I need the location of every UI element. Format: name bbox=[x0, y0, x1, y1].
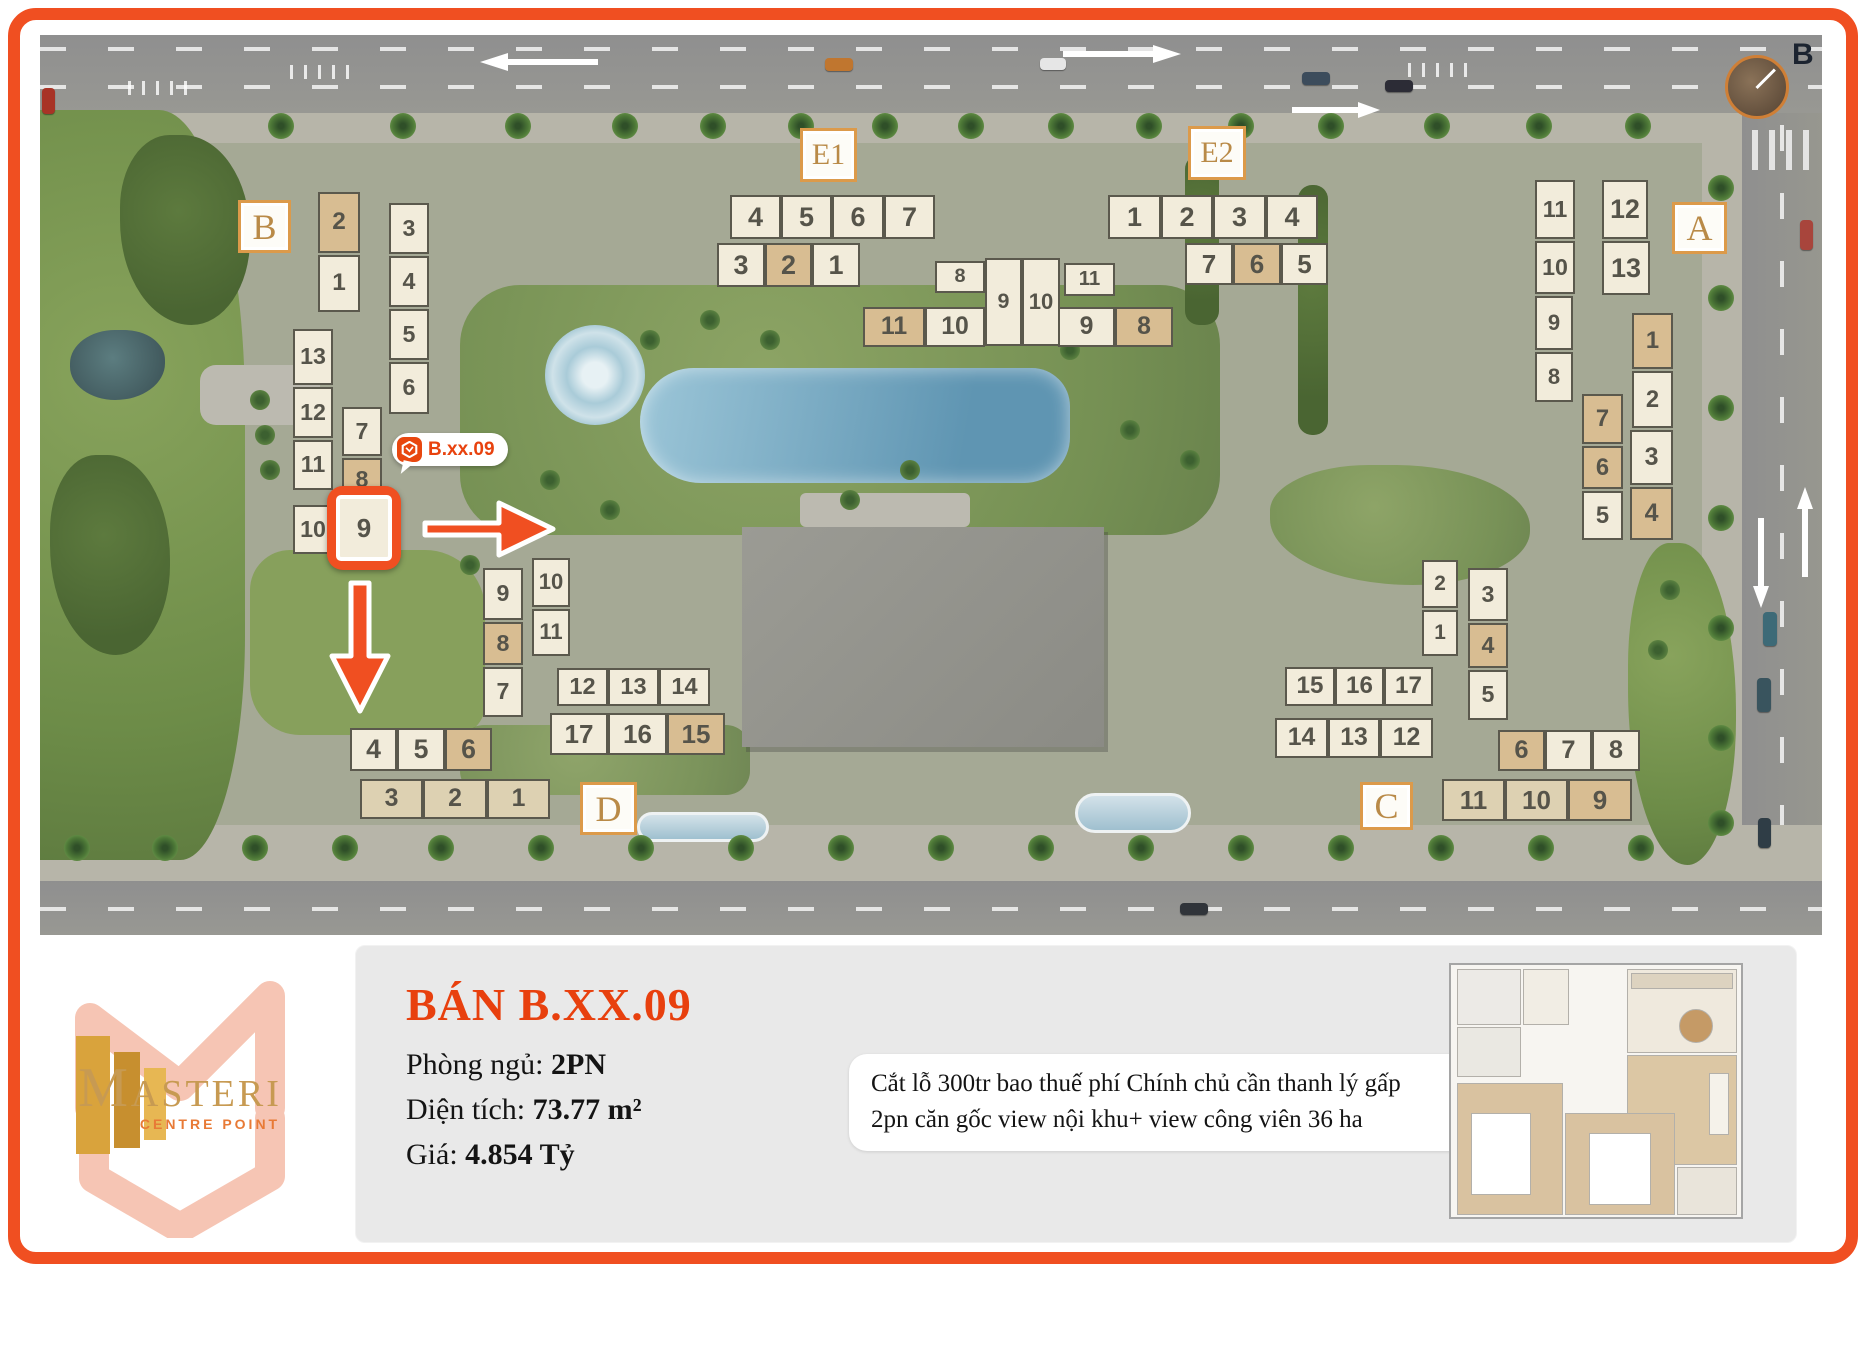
listing-title: BÁN B.XX.09 bbox=[406, 978, 692, 1031]
car-icon bbox=[1180, 903, 1208, 915]
tree-icon bbox=[840, 490, 860, 510]
palm-tree-icon bbox=[242, 835, 268, 861]
car-icon bbox=[42, 88, 55, 114]
floor-plan-sofa bbox=[1709, 1073, 1729, 1135]
car-icon bbox=[1763, 612, 1777, 646]
unit-box-c-1: 1 bbox=[1422, 610, 1458, 656]
pointer-arrow-right-icon bbox=[422, 497, 558, 561]
floor-plan-image bbox=[1449, 963, 1743, 1219]
car-icon bbox=[1385, 80, 1413, 92]
parking-marks bbox=[290, 65, 360, 79]
sidewalk-top bbox=[40, 113, 1822, 143]
unit-box-e-10: 10 bbox=[1022, 258, 1060, 346]
compass-icon bbox=[1725, 55, 1789, 119]
logo-brand-text: MASTERI bbox=[52, 1056, 308, 1120]
logo-tagline-text: CENTRE POINT bbox=[82, 1116, 338, 1132]
unit-box-c-11: 11 bbox=[1442, 779, 1505, 821]
unit-box-c-4: 4 bbox=[1468, 623, 1508, 668]
palm-tree-icon bbox=[628, 835, 654, 861]
tree-icon bbox=[255, 425, 275, 445]
palm-tree-icon bbox=[1708, 810, 1734, 836]
tree-icon bbox=[250, 390, 270, 410]
palm-tree-icon bbox=[728, 835, 754, 861]
note-line-2: 2pn căn gốc view nội khu+ view công viên… bbox=[871, 1102, 1459, 1138]
unit-box-c-2: 2 bbox=[1422, 560, 1458, 608]
unit-box-a-7: 7 bbox=[1582, 394, 1623, 444]
floor-plan-room bbox=[1457, 969, 1521, 1025]
unit-box-a-11: 11 bbox=[1535, 180, 1575, 239]
area-value: 73.77 m² bbox=[533, 1093, 642, 1126]
unit-box-b-6: 6 bbox=[389, 362, 429, 414]
unit-box-a-8: 8 bbox=[1535, 352, 1573, 402]
unit-box-d-12: 12 bbox=[557, 668, 608, 706]
palm-tree-icon bbox=[528, 835, 554, 861]
tooltip-label: B.xx.09 bbox=[428, 439, 495, 461]
unit-box-b-7: 7 bbox=[342, 407, 382, 456]
unit-box-d-9: 9 bbox=[483, 568, 523, 620]
block-label-b: B bbox=[238, 200, 291, 253]
unit-box-c-6: 6 bbox=[1498, 730, 1545, 771]
unit-box-c-7: 7 bbox=[1545, 730, 1592, 771]
unit-box-e-9: 9 bbox=[985, 258, 1022, 346]
palm-tree-icon bbox=[1528, 835, 1554, 861]
floor-plan-bed bbox=[1471, 1113, 1531, 1195]
tree-icon bbox=[900, 460, 920, 480]
price-value: 4.854 Tỷ bbox=[465, 1138, 574, 1171]
unit-box-c-8: 8 bbox=[1592, 730, 1640, 771]
unit-box-e2-7: 7 bbox=[1185, 243, 1233, 285]
unit-box-d-16: 16 bbox=[608, 713, 667, 755]
tree-icon bbox=[260, 460, 280, 480]
tree-icon bbox=[1120, 420, 1140, 440]
unit-box-e2-6: 6 bbox=[1233, 243, 1281, 285]
palm-tree-icon bbox=[1526, 113, 1552, 139]
tree-icon bbox=[1648, 640, 1668, 660]
palm-tree-icon bbox=[390, 113, 416, 139]
garden-southeast bbox=[1270, 465, 1530, 585]
unit-box-a-4: 4 bbox=[1630, 487, 1673, 540]
unit-box-b-12: 12 bbox=[293, 387, 333, 438]
lane-dashes bbox=[40, 47, 1822, 51]
compass-north-label: B bbox=[1792, 38, 1814, 72]
unit-box-d-5: 5 bbox=[397, 728, 445, 771]
area-label: Diện tích: bbox=[406, 1093, 533, 1126]
unit-box-d-7: 7 bbox=[483, 667, 523, 717]
lazy-river bbox=[1075, 793, 1191, 833]
unit-box-b-2: 2 bbox=[318, 192, 360, 253]
floor-plan-balcony bbox=[1677, 1167, 1737, 1215]
unit-box-e1-2: 2 bbox=[765, 243, 812, 287]
palm-tree-icon bbox=[958, 113, 984, 139]
bedrooms-row: Phòng ngủ: 2PN bbox=[406, 1048, 606, 1082]
tree-icon bbox=[1660, 580, 1680, 600]
unit-box-a-10: 10 bbox=[1535, 241, 1575, 294]
unit-box-c-5: 5 bbox=[1468, 670, 1508, 720]
parking-marks bbox=[1408, 63, 1472, 77]
unit-box-e-10b: 10 bbox=[925, 307, 985, 347]
block-label-e1: E1 bbox=[800, 128, 857, 182]
palm-tree-icon bbox=[1228, 835, 1254, 861]
unit-box-e-9b: 9 bbox=[1058, 307, 1115, 347]
road-arrow-right-icon bbox=[1292, 101, 1382, 119]
unit-box-c-9: 9 bbox=[1568, 779, 1632, 821]
palm-tree-icon bbox=[152, 835, 178, 861]
water-feature-spiral bbox=[545, 325, 645, 425]
unit-box-d-3: 3 bbox=[360, 779, 423, 819]
tree-icon bbox=[760, 330, 780, 350]
unit-box-d-4: 4 bbox=[350, 728, 397, 771]
car-icon bbox=[1302, 72, 1330, 85]
palm-tree-icon bbox=[332, 835, 358, 861]
clubhouse-footprint bbox=[742, 527, 1104, 747]
palm-tree-icon bbox=[1424, 113, 1450, 139]
hedge bbox=[1185, 155, 1219, 325]
palm-tree-icon bbox=[64, 835, 90, 861]
unit-box-e1-3: 3 bbox=[717, 243, 765, 287]
road-arrow-right-icon bbox=[1063, 43, 1183, 65]
floor-plan-bed bbox=[1589, 1133, 1651, 1205]
block-label-a: A bbox=[1672, 202, 1727, 254]
palm-tree-icon bbox=[1708, 725, 1734, 751]
block-label-e2: E2 bbox=[1188, 126, 1246, 180]
central-pool bbox=[640, 368, 1070, 483]
unit-box-c-10: 10 bbox=[1505, 779, 1568, 821]
palm-tree-icon bbox=[1708, 285, 1734, 311]
unit-box-d-1: 1 bbox=[487, 779, 550, 819]
unit-box-d-15: 15 bbox=[667, 713, 725, 755]
floor-plan-counter bbox=[1631, 973, 1733, 989]
unit-box-e1-1: 1 bbox=[812, 243, 860, 287]
price-row: Giá: 4.854 Tỷ bbox=[406, 1138, 575, 1172]
crosswalk bbox=[1752, 130, 1816, 170]
unit-box-e2-1: 1 bbox=[1108, 195, 1161, 239]
palm-tree-icon bbox=[1428, 835, 1454, 861]
tree-icon bbox=[640, 330, 660, 350]
unit-box-d-14: 14 bbox=[659, 668, 710, 706]
unit-box-c-16: 16 bbox=[1335, 667, 1384, 706]
unit-box-e-11b: 11 bbox=[863, 307, 925, 347]
unit-box-b-3: 3 bbox=[389, 203, 429, 254]
palm-tree-icon bbox=[1708, 395, 1734, 421]
palm-tree-icon bbox=[1028, 835, 1054, 861]
unit-box-b-4: 4 bbox=[389, 256, 429, 307]
palm-tree-icon bbox=[1708, 615, 1734, 641]
masteri-logo: MASTERI CENTRE POINT bbox=[52, 948, 308, 1238]
unit-box-c-15: 15 bbox=[1285, 667, 1335, 706]
palm-tree-icon bbox=[1136, 113, 1162, 139]
road-arrow-down-icon bbox=[1752, 518, 1770, 610]
unit-box-e2-3: 3 bbox=[1213, 195, 1266, 239]
unit-box-b-1: 1 bbox=[318, 255, 360, 312]
palm-tree-icon bbox=[612, 113, 638, 139]
unit-box-a-6: 6 bbox=[1582, 446, 1623, 489]
unit-box-e2-2: 2 bbox=[1161, 195, 1213, 239]
unit-box-c-3: 3 bbox=[1468, 568, 1508, 621]
palm-tree-icon bbox=[700, 113, 726, 139]
listing-note: Cắt lỗ 300tr bao thuế phí Chính chủ cần … bbox=[849, 1054, 1481, 1151]
tooltip-tail bbox=[401, 460, 422, 478]
palm-tree-icon bbox=[1328, 835, 1354, 861]
unit-box-c-13: 13 bbox=[1328, 718, 1380, 758]
unit-box-a-2: 2 bbox=[1632, 371, 1673, 428]
palm-tree-icon bbox=[1628, 835, 1654, 861]
price-label: Giá: bbox=[406, 1138, 465, 1171]
tree-icon bbox=[700, 310, 720, 330]
tree-icon bbox=[600, 500, 620, 520]
unit-box-c-14: 14 bbox=[1275, 718, 1328, 758]
unit-box-e-8: 8 bbox=[935, 261, 985, 293]
unit-box-b-13: 13 bbox=[293, 329, 333, 385]
tree-icon bbox=[1180, 450, 1200, 470]
unit-box-a-3: 3 bbox=[1630, 430, 1673, 485]
tree-icon bbox=[540, 470, 560, 490]
unit-box-d-8: 8 bbox=[483, 622, 523, 665]
unit-box-e1-4: 4 bbox=[730, 195, 781, 239]
palm-tree-icon bbox=[1625, 113, 1651, 139]
road-arrow-up-icon bbox=[1796, 485, 1814, 577]
lane-dashes bbox=[40, 85, 1822, 89]
car-icon bbox=[1757, 678, 1771, 712]
palm-tree-icon bbox=[872, 113, 898, 139]
palm-tree-icon bbox=[828, 835, 854, 861]
unit-box-a-1: 1 bbox=[1632, 313, 1673, 369]
unit-box-e2-4: 4 bbox=[1266, 195, 1318, 239]
unit-box-a-13: 13 bbox=[1602, 241, 1650, 295]
area-row: Diện tích: 73.77 m² bbox=[406, 1093, 642, 1127]
lane-dashes bbox=[1780, 125, 1784, 880]
unit-box-d-6: 6 bbox=[445, 728, 492, 771]
unit-box-d-13: 13 bbox=[608, 668, 659, 706]
pavilion bbox=[800, 493, 970, 527]
unit-box-c-12: 12 bbox=[1380, 718, 1433, 758]
unit-box-a-5: 5 bbox=[1582, 491, 1623, 540]
floor-plan-table bbox=[1679, 1009, 1713, 1043]
floor-plan-room bbox=[1523, 969, 1569, 1025]
palm-tree-icon bbox=[268, 113, 294, 139]
unit-box-a-12: 12 bbox=[1602, 180, 1648, 239]
compass-needle bbox=[1755, 69, 1776, 90]
unit-box-b-9[interactable]: 9 bbox=[336, 495, 392, 561]
unit-box-e-8b: 8 bbox=[1115, 307, 1173, 347]
unit-box-d-11: 11 bbox=[532, 609, 570, 656]
bedrooms-value: 2PN bbox=[551, 1048, 606, 1081]
palm-tree-icon bbox=[1708, 505, 1734, 531]
unit-box-e-11: 11 bbox=[1064, 263, 1115, 296]
car-icon bbox=[1758, 818, 1771, 848]
unit-box-b-5: 5 bbox=[389, 309, 429, 360]
parking-marks bbox=[128, 81, 198, 95]
palm-tree-icon bbox=[428, 835, 454, 861]
unit-box-e1-6: 6 bbox=[832, 195, 884, 239]
highlighted-unit-ring[interactable]: 9 bbox=[327, 486, 401, 570]
palm-tree-icon bbox=[928, 835, 954, 861]
car-icon bbox=[1800, 220, 1813, 250]
note-line-1: Cắt lỗ 300tr bao thuế phí Chính chủ cần … bbox=[871, 1066, 1459, 1102]
block-label-c: C bbox=[1360, 782, 1413, 830]
pointer-arrow-down-icon bbox=[328, 580, 392, 716]
palm-tree-icon bbox=[1708, 175, 1734, 201]
unit-box-d-2: 2 bbox=[423, 779, 487, 819]
unit-box-d-10: 10 bbox=[532, 558, 570, 607]
unit-box-d-17: 17 bbox=[550, 713, 608, 755]
unit-box-a-9: 9 bbox=[1535, 296, 1573, 350]
site-plan-image: B 9 B.xx.09 2134561312111078456732189101… bbox=[40, 35, 1822, 935]
palm-tree-icon bbox=[1048, 113, 1074, 139]
unit-box-e2-5: 5 bbox=[1281, 243, 1328, 285]
palm-tree-icon bbox=[505, 113, 531, 139]
car-icon bbox=[825, 58, 853, 71]
block-label-d: D bbox=[580, 782, 637, 835]
listing-info-panel: BÁN B.XX.09 Phòng ngủ: 2PN Diện tích: 73… bbox=[355, 945, 1797, 1243]
bedrooms-label: Phòng ngủ: bbox=[406, 1048, 551, 1081]
lane-dashes bbox=[40, 907, 1822, 911]
unit-box-e1-5: 5 bbox=[781, 195, 832, 239]
unit-box-e1-7: 7 bbox=[884, 195, 935, 239]
road-arrow-left-icon bbox=[478, 51, 598, 73]
unit-box-c-17: 17 bbox=[1384, 667, 1433, 706]
masteri-logo-icon bbox=[397, 437, 422, 462]
unit-box-b-11: 11 bbox=[293, 440, 333, 490]
palm-tree-icon bbox=[1128, 835, 1154, 861]
floor-plan-room bbox=[1457, 1027, 1521, 1077]
